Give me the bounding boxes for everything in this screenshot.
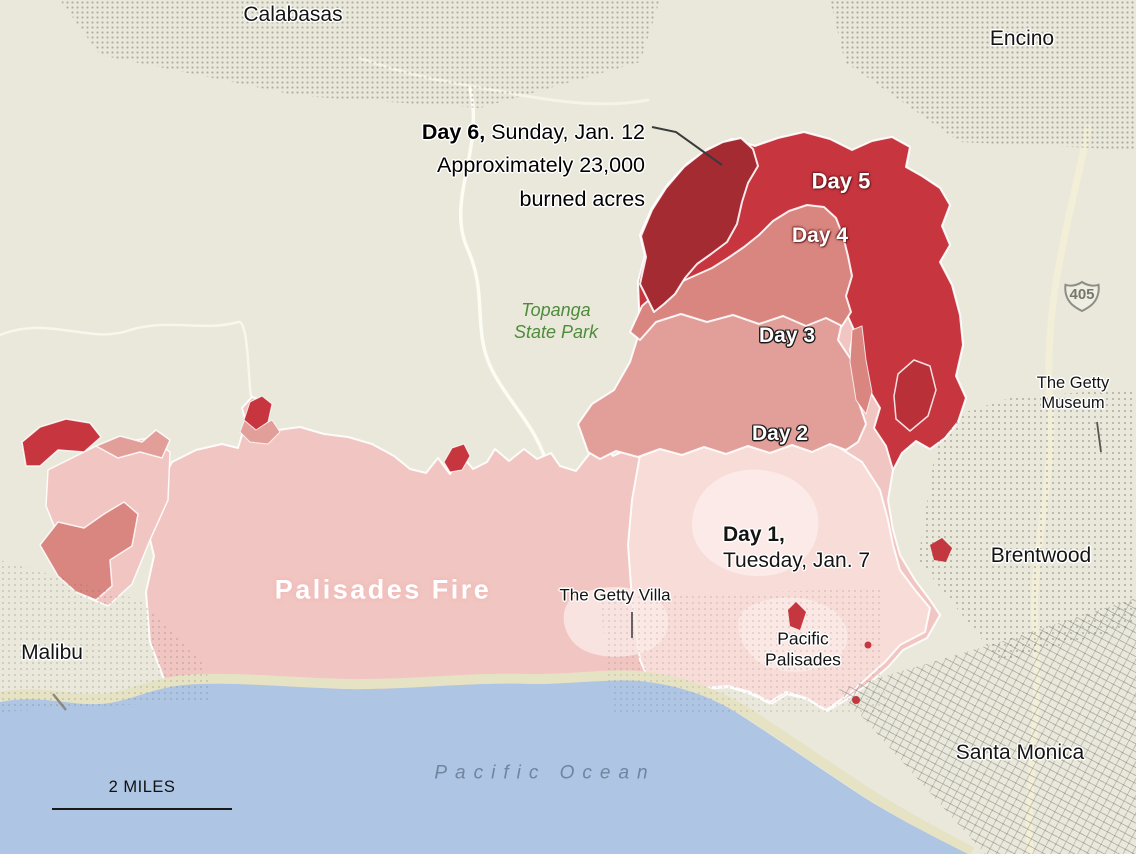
label-topanga-state-park: Topanga State Park	[514, 300, 598, 344]
scale-bar-label: 2 MILES	[52, 778, 232, 797]
label-getty-museum-line2: Museum	[1037, 393, 1109, 413]
map-canvas: Calabasas Encino Malibu Brentwood Santa …	[0, 0, 1136, 854]
label-day1-title: Day 1,	[723, 522, 870, 548]
day6-annotation-daylabel: Day 6,	[422, 120, 485, 144]
label-santa-monica: Santa Monica	[956, 740, 1084, 766]
label-encino: Encino	[990, 26, 1054, 52]
label-palisades-fire: Palisades Fire	[275, 574, 492, 607]
label-pacific-ocean: Pacific Ocean	[434, 761, 655, 784]
label-day4: Day 4	[792, 223, 848, 249]
scale-bar-line	[52, 808, 232, 810]
label-day5: Day 5	[812, 169, 871, 196]
day6-annotation-line2: Approximately 23,000	[355, 149, 645, 182]
label-getty-villa: The Getty Villa	[559, 586, 670, 607]
label-day1: Day 1, Tuesday, Jan. 7	[723, 522, 870, 573]
label-calabasas: Calabasas	[243, 2, 342, 28]
day6-annotation-date: Sunday, Jan. 12	[485, 120, 645, 144]
label-day3: Day 3	[759, 323, 815, 349]
label-malibu: Malibu	[21, 640, 83, 666]
label-pacific-palisades-line1: Pacific	[765, 629, 841, 650]
label-topanga-line2: State Park	[514, 322, 598, 344]
label-day2: Day 2	[752, 421, 808, 447]
label-brentwood: Brentwood	[991, 543, 1091, 569]
day6-annotation-line3: burned acres	[355, 183, 645, 216]
fire-coast-red-dot	[852, 696, 860, 704]
label-getty-museum: The Getty Museum	[1037, 373, 1109, 413]
label-topanga-line1: Topanga	[514, 300, 598, 322]
label-pacific-palisades-line2: Palisades	[765, 650, 841, 671]
highway-405-number: 405	[1063, 286, 1101, 303]
label-day1-date: Tuesday, Jan. 7	[723, 548, 870, 574]
day6-annotation: Day 6, Sunday, Jan. 12 Approximately 23,…	[355, 116, 645, 216]
fire-coast-red-dot-2	[865, 642, 872, 649]
label-getty-museum-line1: The Getty	[1037, 373, 1109, 393]
highway-405-shield: 405	[1063, 280, 1101, 317]
label-pacific-palisades: Pacific Palisades	[765, 629, 841, 672]
day6-annotation-line1: Day 6, Sunday, Jan. 12	[355, 116, 645, 149]
